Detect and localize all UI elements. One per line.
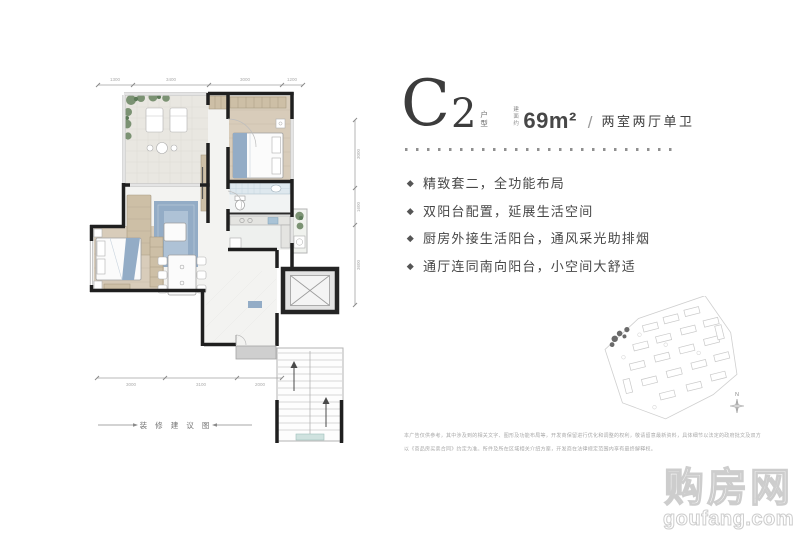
dim-label: 3600 <box>356 259 361 270</box>
highlight-building-marker <box>606 326 632 347</box>
unit-type-suffix: 户型 <box>480 110 489 129</box>
dimension-right: 3000 1600 3600 <box>353 118 361 307</box>
kitchen-sink <box>268 218 278 225</box>
wardrobe <box>230 97 286 108</box>
hall-cabinet <box>209 96 227 109</box>
sink <box>271 185 281 192</box>
plan-caption-text: 装 修 建 议 图 <box>140 420 213 430</box>
area-group: 建面约 69m² <box>513 107 576 130</box>
dim-label: 3100 <box>196 382 207 387</box>
highlight-text: 厨房外接生活阳台，通风采光助排烟 <box>423 231 650 246</box>
site-plan-map <box>598 296 747 429</box>
counter <box>230 216 290 225</box>
bullet-icon <box>407 235 413 241</box>
bullet-icon <box>407 208 413 214</box>
watermark-domain: goufang.com <box>663 509 794 529</box>
dim-label: 1600 <box>356 201 361 212</box>
watermark: 购房网 goufang.com <box>663 468 794 529</box>
nightstand <box>276 119 285 128</box>
divider-slash: / <box>588 115 593 130</box>
dimension-bottom: 3000 3100 2000 <box>95 376 284 387</box>
highlight-text: 通厅连同南向阳台，小空间大舒适 <box>423 259 636 274</box>
washer <box>294 236 305 248</box>
dim-label: 3000 <box>240 77 251 82</box>
dimension-top: 1300 3400 3000 1200 <box>96 77 305 87</box>
highlight-item: 通厅连同南向阳台，小空间大舒适 <box>406 259 650 275</box>
round-table <box>157 143 168 154</box>
area-value: 69m² <box>523 111 576 131</box>
elevator <box>283 269 337 312</box>
disclaimer-line: 本广告仅供参考，其中涉及到的相关文字、图形及功能布局等，开发商保留进行优化和调整… <box>404 429 761 443</box>
bed-throw <box>233 133 247 178</box>
room-layout-text: 两室两厅单卫 <box>602 115 695 128</box>
highlight-text: 精致套二，全功能布局 <box>423 176 565 191</box>
watermark-title: 购房网 <box>663 468 794 508</box>
dim-label: 3000 <box>126 382 137 387</box>
highlight-item: 精致套二，全功能布局 <box>406 176 650 192</box>
plan-caption: 装 修 建 议 图 <box>98 420 252 430</box>
toilet <box>236 200 245 210</box>
compass-label: N <box>735 392 739 398</box>
service-balcony <box>292 209 307 253</box>
nightstand <box>94 281 102 289</box>
floorplan-drawing: 1300 3400 3000 1200 3000 3100 2000 3000 … <box>80 55 380 475</box>
bullet-icon <box>407 263 413 269</box>
dim-label: 3400 <box>166 77 177 82</box>
fridge <box>230 238 241 248</box>
highlight-item: 双阳台配置，延展生活空间 <box>406 204 650 220</box>
lounge-chair <box>170 108 187 132</box>
stair-landing-strip <box>296 434 324 440</box>
dim-label: 1200 <box>287 77 298 82</box>
disclaimer-text: 本广告仅供参考，其中涉及到的相关文字、图形及功能布局等，开发商保留进行优化和调整… <box>404 429 761 456</box>
dotted-divider <box>405 148 673 151</box>
entry-mat <box>248 301 262 308</box>
coffee-table <box>164 223 186 241</box>
lounge-chair <box>146 108 163 132</box>
site-plan: N <box>593 296 758 446</box>
highlight-list: 精致套二，全功能布局 双阳台配置，延展生活空间 厨房外接生活阳台，通风采光助排烟… <box>406 176 650 286</box>
unit-type-number: 2 <box>451 99 476 130</box>
compass: N <box>730 392 744 413</box>
disclaimer-line: 以《商品房买卖合同》约定为准。所件及所在区域相关介绍方案，开发商在法律规定范围内… <box>404 443 761 457</box>
bullet-icon <box>407 180 413 186</box>
dim-label: 3000 <box>356 148 361 159</box>
area-label: 建面约 <box>513 107 520 128</box>
dim-label: 2000 <box>255 382 266 387</box>
unit-type-letter: C <box>401 78 450 130</box>
unit-title: C 2 户型 建面约 69m² / 两室两厅单卫 <box>401 78 695 130</box>
dim-label: 1300 <box>110 77 121 82</box>
bench <box>104 284 130 289</box>
highlight-text: 双阳台配置，延展生活空间 <box>423 204 593 219</box>
staircase <box>277 348 343 443</box>
entry-landing <box>236 346 276 359</box>
nightstand <box>94 229 102 237</box>
floorplan-flyer: 1300 3400 3000 1200 3000 3100 2000 3000 … <box>0 0 800 533</box>
highlight-item: 厨房外接生活阳台，通风采光助排烟 <box>406 231 650 247</box>
master-bedroom <box>94 229 163 289</box>
